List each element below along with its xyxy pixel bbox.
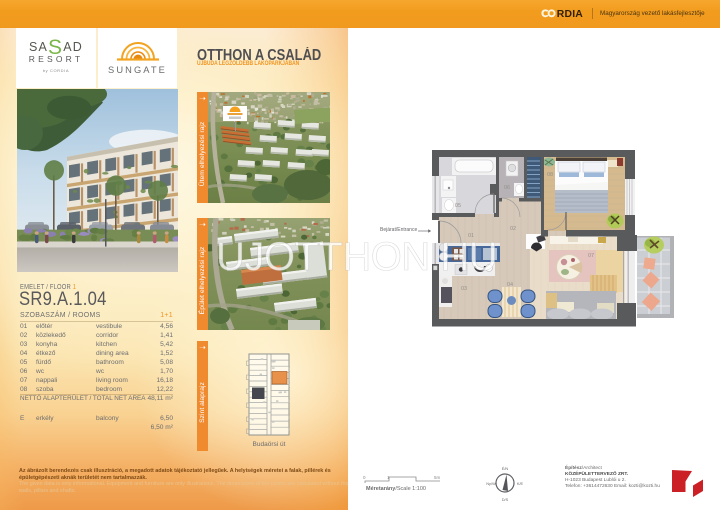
svg-text:É/N: É/N — [502, 466, 509, 471]
svg-text:08: 08 — [547, 172, 553, 178]
svg-text:1: 1 — [387, 475, 390, 480]
svg-text:03: 03 — [461, 286, 467, 292]
svg-text:06: 06 — [504, 185, 510, 191]
svg-text:Ny/W: Ny/W — [486, 481, 496, 486]
svg-text:RDIA: RDIA — [557, 9, 583, 20]
svg-text:D/S: D/S — [502, 497, 509, 502]
svg-text:02: 02 — [510, 226, 516, 232]
svg-text:05: 05 — [455, 203, 461, 209]
svg-text:07: 07 — [588, 253, 594, 259]
svg-text:K/E: K/E — [517, 481, 524, 486]
svg-text:0: 0 — [363, 475, 366, 480]
svg-text:5m: 5m — [434, 475, 441, 480]
svg-text:04: 04 — [507, 282, 513, 288]
